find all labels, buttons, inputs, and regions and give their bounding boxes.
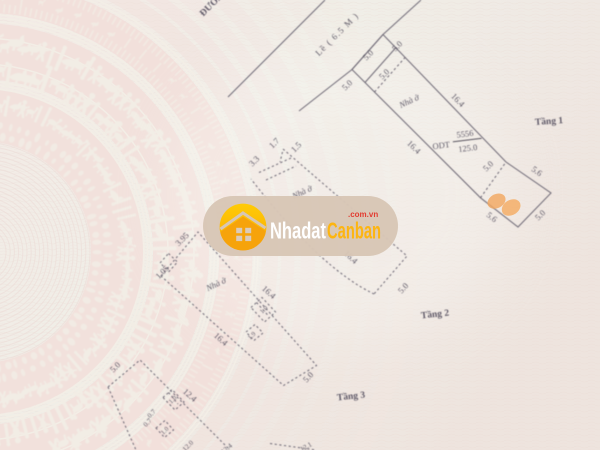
svg-text:5556: 5556 xyxy=(456,128,474,140)
svg-text:.com.vn: .com.vn xyxy=(348,210,378,219)
svg-text:Tầng 1: Tầng 1 xyxy=(535,115,564,128)
svg-text:Canban: Canban xyxy=(327,218,381,244)
svg-text:Nhadat: Nhadat xyxy=(270,218,326,244)
